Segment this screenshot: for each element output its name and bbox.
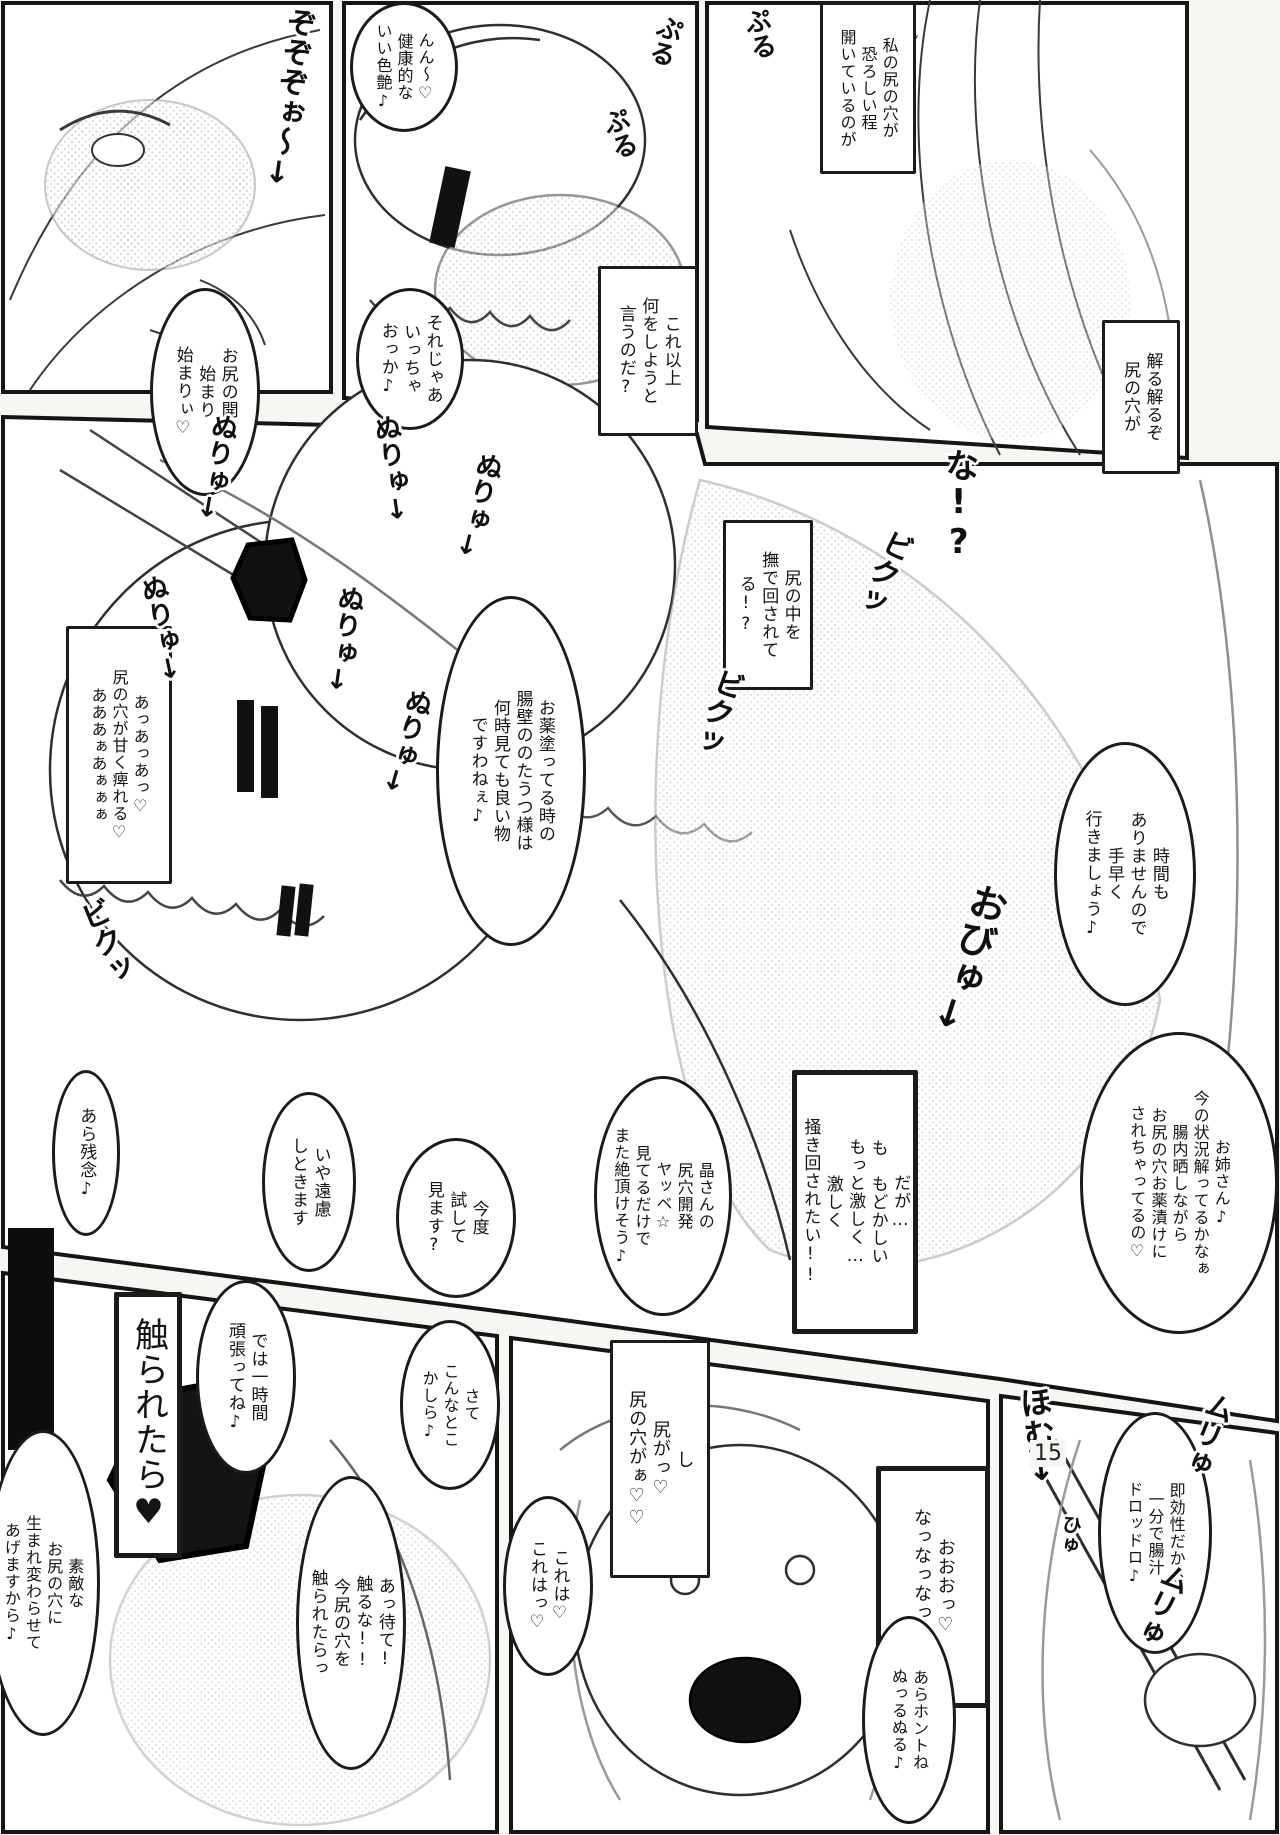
sfx-biku-1: ビクッ bbox=[848, 524, 916, 619]
text-layer: 15 私の尻の穴が 恐ろしい程 開いているのがんん〜♡ 健康的な いい色艶♪これ… bbox=[0, 0, 1280, 1835]
narration-box-stir-harder-text: だが… も もどかしい もっと激しく… 激しく 掻き回されたい!! bbox=[799, 1118, 911, 1286]
sfx-na: な!? bbox=[940, 448, 976, 562]
narration-box-if-touched-text: 触られたら♥ bbox=[126, 1317, 171, 1533]
narration-box-what-more: これ以上 何をしようと 言うのだ? bbox=[598, 266, 698, 436]
sfx-puru-2: ぷる bbox=[643, 11, 684, 69]
speech-bubble-about-here: さて こんなとこ かしら♪ bbox=[400, 1320, 500, 1490]
speech-bubble-too-bad-text: あら残念♪ bbox=[75, 1107, 97, 1200]
speech-bubble-try-next-time-text: 今度 試して 見ます? bbox=[422, 1181, 489, 1256]
narration-box-being-rubbed-text: 尻の中を 撫で回されてる!? bbox=[734, 523, 801, 687]
narration-box-numb-moan-text: あっあっあっ♡ 尻の穴が甘く痺れる♡ あああぁあぁぁぁ bbox=[87, 669, 150, 842]
speech-bubble-lets-go-text: それじゃあ いっちゃ おっか♪ bbox=[376, 314, 443, 404]
sfx-nuryu-6: ぬりゅ↓ bbox=[375, 684, 433, 799]
speech-bubble-really-slippery-text: あらホントね ぬっるぬる♪ bbox=[888, 1668, 930, 1773]
sfx-puru-1: ぷる bbox=[739, 6, 777, 63]
sfx-homu: ほむ↓ bbox=[1015, 1385, 1059, 1490]
speech-bubble-healthy-luster-text: んん〜♡ 健康的な いい色艶♪ bbox=[372, 23, 435, 111]
speech-bubble-no-thanks-text: いや遠慮 しときます bbox=[287, 1137, 332, 1227]
narration-box-my-hole-text: 私の尻の穴が 恐ろしい程 開いているのが bbox=[836, 29, 899, 148]
speech-bubble-try-next-time: 今度 試して 見ます? bbox=[396, 1138, 516, 1298]
speech-bubble-lets-go: それじゃあ いっちゃ おっか♪ bbox=[356, 288, 464, 430]
sfx-hyu: ひゅ bbox=[1055, 1512, 1083, 1555]
speech-bubble-healthy-luster: んん〜♡ 健康的な いい色艶♪ bbox=[350, 2, 458, 132]
narration-box-stir-harder: だが… も もどかしい もっと激しく… 激しく 掻き回されたい!! bbox=[792, 1070, 918, 1334]
narration-box-being-rubbed: 尻の中を 撫で回されてる!? bbox=[723, 520, 813, 690]
speech-bubble-no-thanks: いや遠慮 しときます bbox=[262, 1092, 356, 1272]
speech-bubble-this-is: これは♡ これはっ♡ bbox=[503, 1496, 593, 1676]
speech-bubble-akira-development-text: 晶さんの 尻穴開発 ヤッベ☆ 見てるだけで また絶頂けそう♪ bbox=[610, 1127, 716, 1266]
speech-bubble-akira-development: 晶さんの 尻穴開発 ヤッベ☆ 見てるだけで また絶頂けそう♪ bbox=[594, 1076, 732, 1316]
speech-bubble-medicine-view-text: お薬塗ってる時の 腸壁ののたうつ様は 何時見ても良い物 ですわねぇ♪ bbox=[466, 690, 556, 852]
speech-bubble-really-slippery: あらホントね ぬっるぬる♪ bbox=[862, 1616, 956, 1824]
narration-box-if-touched: 触られたら♥ bbox=[114, 1292, 182, 1558]
speech-bubble-one-hour: では一時間 頑張ってね♪ bbox=[196, 1280, 296, 1474]
speech-bubble-no-time-text: 時間も ありませんので 手早く 行きましょう♪ bbox=[1080, 810, 1170, 939]
narration-box-what-more-text: これ以上 何をしようと 言うのだ? bbox=[614, 297, 681, 405]
sfx-nuryu-5: ぬりゅ↓ bbox=[320, 583, 364, 698]
narration-box-my-hole: 私の尻の穴が 恐ろしい程 開いているのが bbox=[820, 2, 916, 174]
sfx-obyu: おびゅ↓ bbox=[923, 878, 1010, 1041]
narration-box-my-butt: し 尻がっ♡ 尻の穴がぁ♡♡ bbox=[610, 1340, 710, 1578]
speech-bubble-wonderful-hole-text: 素敵な お尻の穴に 生まれ変わらせて あげますから♪ bbox=[1, 1515, 85, 1651]
speech-bubble-this-is-text: これは♡ これはっ♡ bbox=[526, 1540, 571, 1633]
narration-box-my-butt-text: し 尻がっ♡ 尻の穴がぁ♡♡ bbox=[624, 1390, 695, 1529]
speech-bubble-wait-dont-touch: あっ待て! 触るな!! 今尻の穴を 触られたらっ bbox=[296, 1476, 406, 1770]
sfx-zozozo: ぞぞぞぉ〜↓ bbox=[259, 5, 316, 193]
sfx-nuryu-3: ぬりゅ↓ bbox=[449, 448, 504, 564]
speech-bubble-one-hour-text: では一時間 頑張ってね♪ bbox=[224, 1322, 269, 1433]
sfx-biku-3: ビクッ bbox=[72, 895, 135, 990]
narration-box-i-understand-text: 解る解るぞ 尻の穴が bbox=[1119, 352, 1164, 442]
speech-bubble-onee-san: お姉さん♪ 今の状況解ってるかなぁ 腸内晒しながら お尻の穴お薬漬けに されちゃ… bbox=[1080, 1032, 1278, 1334]
sfx-biku-2: ビクッ bbox=[686, 663, 746, 758]
narration-box-i-understand: 解る解るぞ 尻の穴が bbox=[1102, 320, 1180, 474]
speech-bubble-medicine-view: お薬塗ってる時の 腸壁ののたうつ様は 何時見ても良い物 ですわねぇ♪ bbox=[436, 596, 586, 946]
speech-bubble-about-here-text: さて こんなとこ かしら♪ bbox=[418, 1363, 481, 1448]
speech-bubble-onee-san-text: お姉さん♪ 今の状況解ってるかなぁ 腸内晒しながら お尻の穴お薬漬けに されちゃ… bbox=[1126, 1090, 1232, 1277]
speech-bubble-wait-dont-touch-text: あっ待て! 触るな!! 今尻の穴を 触られたらっ bbox=[306, 1569, 396, 1677]
page-number: 15 bbox=[1030, 1440, 1066, 1467]
speech-bubble-no-time: 時間も ありませんので 手早く 行きましょう♪ bbox=[1054, 742, 1196, 1006]
speech-bubble-too-bad: あら残念♪ bbox=[52, 1070, 120, 1236]
manga-page: { "page_number": "15", "colors": { "ink"… bbox=[0, 0, 1280, 1835]
speech-bubble-wonderful-hole: 素敵な お尻の穴に 生まれ変わらせて あげますから♪ bbox=[0, 1430, 100, 1736]
sfx-puru-3: ぷる bbox=[597, 105, 639, 163]
